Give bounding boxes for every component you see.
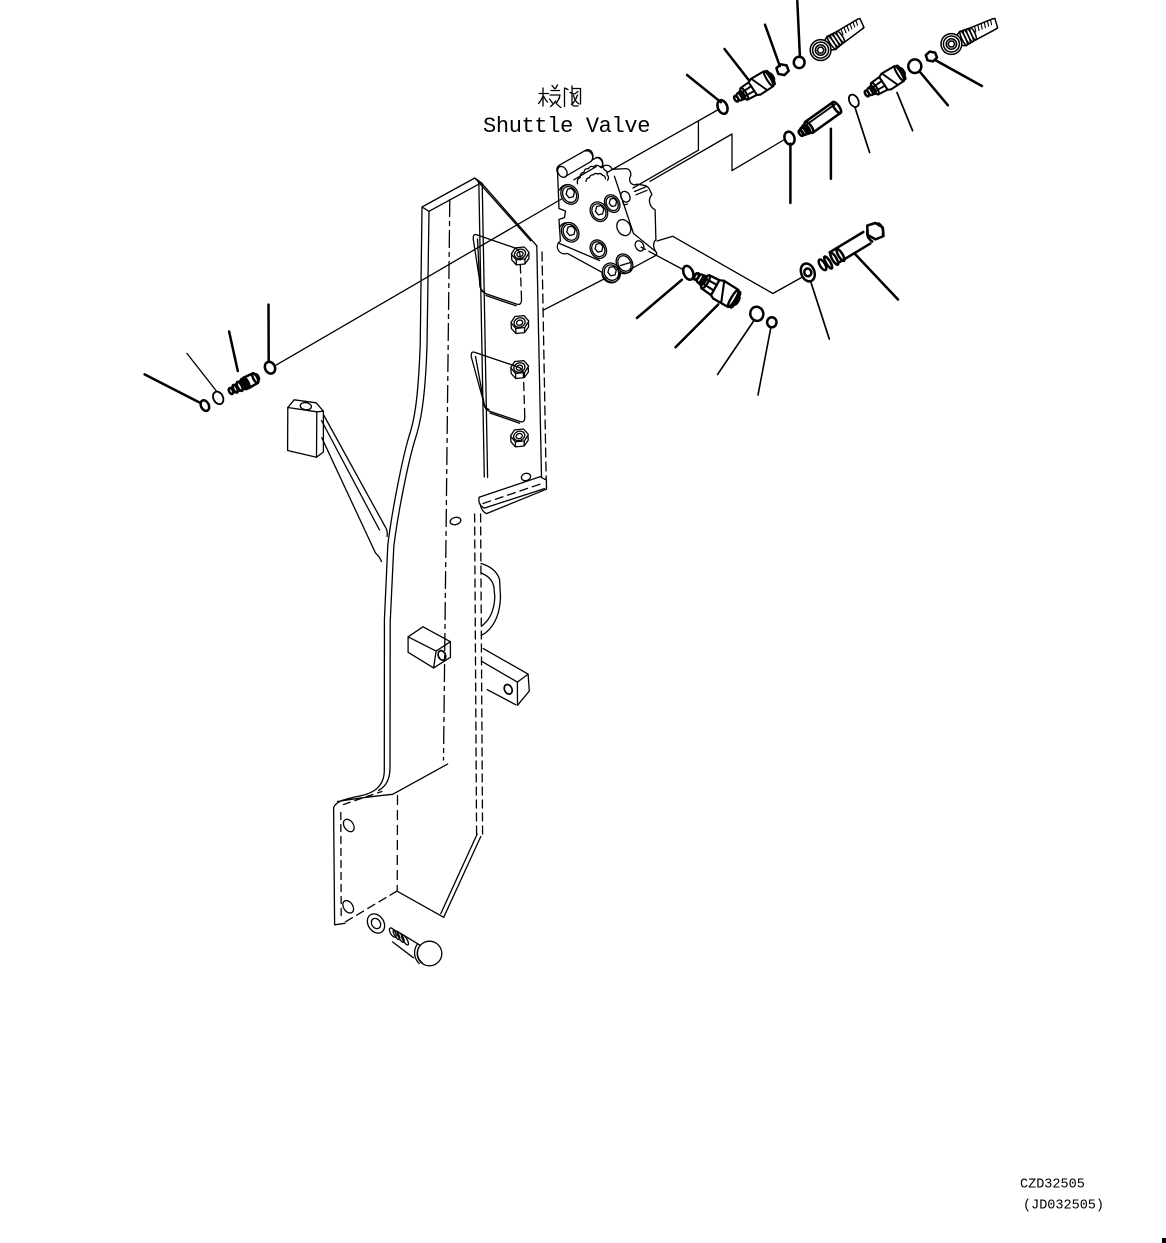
svg-text:Shuttle Valve: Shuttle Valve (483, 114, 650, 139)
svg-text:CZD32505: CZD32505 (1020, 1178, 1085, 1193)
svg-text:(JD032505): (JD032505) (1023, 1199, 1104, 1214)
